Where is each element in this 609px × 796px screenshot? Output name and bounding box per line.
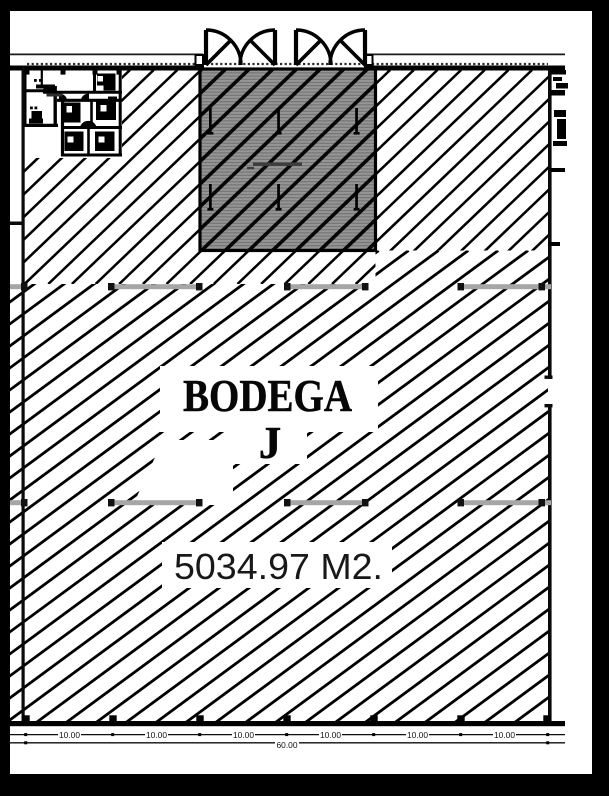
svg-text:60.00: 60.00	[277, 740, 298, 750]
svg-text:5034.97 M2.: 5034.97 M2.	[174, 546, 383, 587]
svg-text:10.00: 10.00	[233, 730, 254, 740]
svg-text:BODEGA: BODEGA	[183, 371, 352, 421]
svg-text:10.00: 10.00	[407, 730, 428, 740]
svg-text:10.00: 10.00	[146, 730, 167, 740]
svg-text:10.00: 10.00	[59, 730, 80, 740]
svg-text:J: J	[259, 418, 282, 468]
svg-text:10.00: 10.00	[494, 730, 515, 740]
svg-text:10.00: 10.00	[320, 730, 341, 740]
